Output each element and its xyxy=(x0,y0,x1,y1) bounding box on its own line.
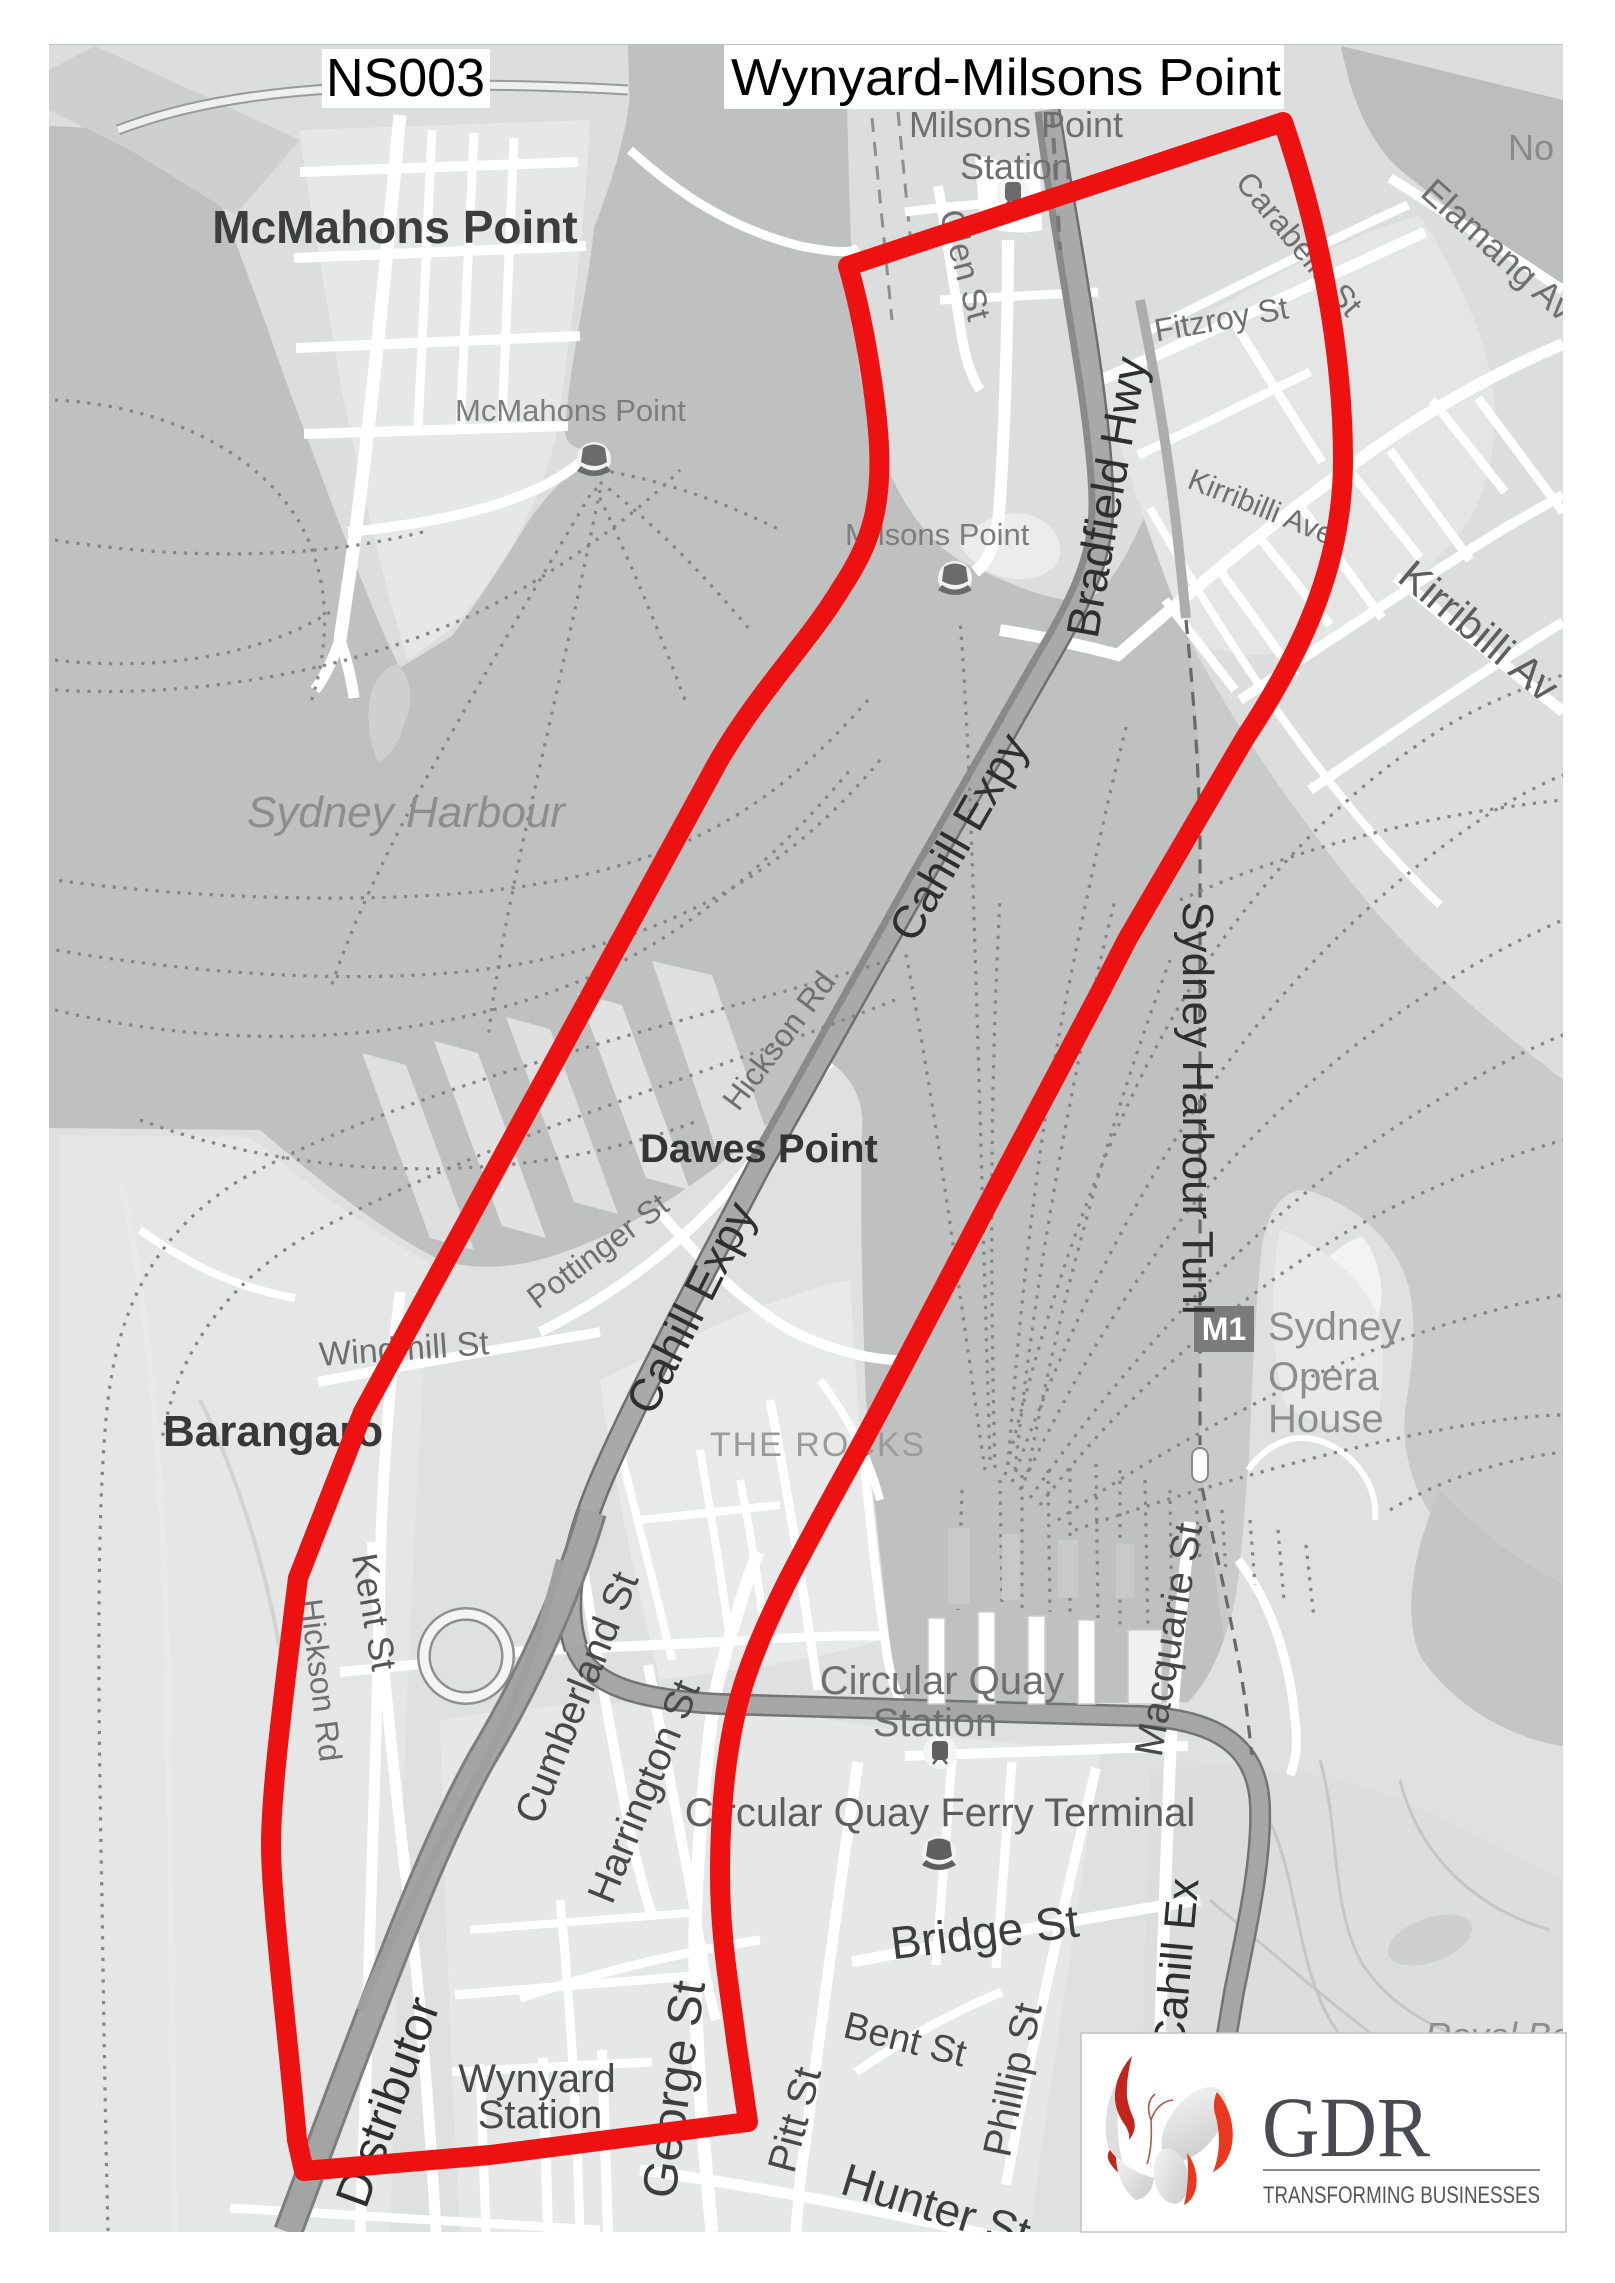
svg-text:House: House xyxy=(1268,1397,1384,1441)
svg-text:Station: Station xyxy=(960,146,1072,187)
svg-text:Station: Station xyxy=(873,1701,998,1745)
svg-text:THE ROCKS: THE ROCKS xyxy=(710,1426,926,1464)
svg-text:Dawes Point: Dawes Point xyxy=(640,1127,878,1171)
svg-text:M1: M1 xyxy=(1202,1311,1246,1347)
svg-text:GDR: GDR xyxy=(1262,2079,1431,2175)
svg-text:Circular Quay Ferry Terminal: Circular Quay Ferry Terminal xyxy=(685,1791,1196,1835)
svg-text:TRANSFORMING BUSINESSES: TRANSFORMING BUSINESSES xyxy=(1263,2182,1540,2209)
svg-text:Opera: Opera xyxy=(1268,1355,1380,1399)
svg-text:No: No xyxy=(1508,127,1554,168)
svg-text:Sydney Harbour: Sydney Harbour xyxy=(247,788,567,837)
svg-text:Circular Quay: Circular Quay xyxy=(820,1659,1065,1703)
svg-text:McMahons Point: McMahons Point xyxy=(212,201,577,253)
svg-text:McMahons Point: McMahons Point xyxy=(455,393,686,428)
svg-text:Station: Station xyxy=(478,2093,603,2137)
svg-text:Sydney: Sydney xyxy=(1268,1305,1401,1349)
svg-text:NS003: NS003 xyxy=(326,48,485,108)
svg-text:Sydney Harbour Tunl: Sydney Harbour Tunl xyxy=(1173,901,1222,1314)
svg-text:Wynyard-Milsons Point: Wynyard-Milsons Point xyxy=(731,49,1282,107)
svg-text:Milsons Point: Milsons Point xyxy=(909,104,1123,145)
